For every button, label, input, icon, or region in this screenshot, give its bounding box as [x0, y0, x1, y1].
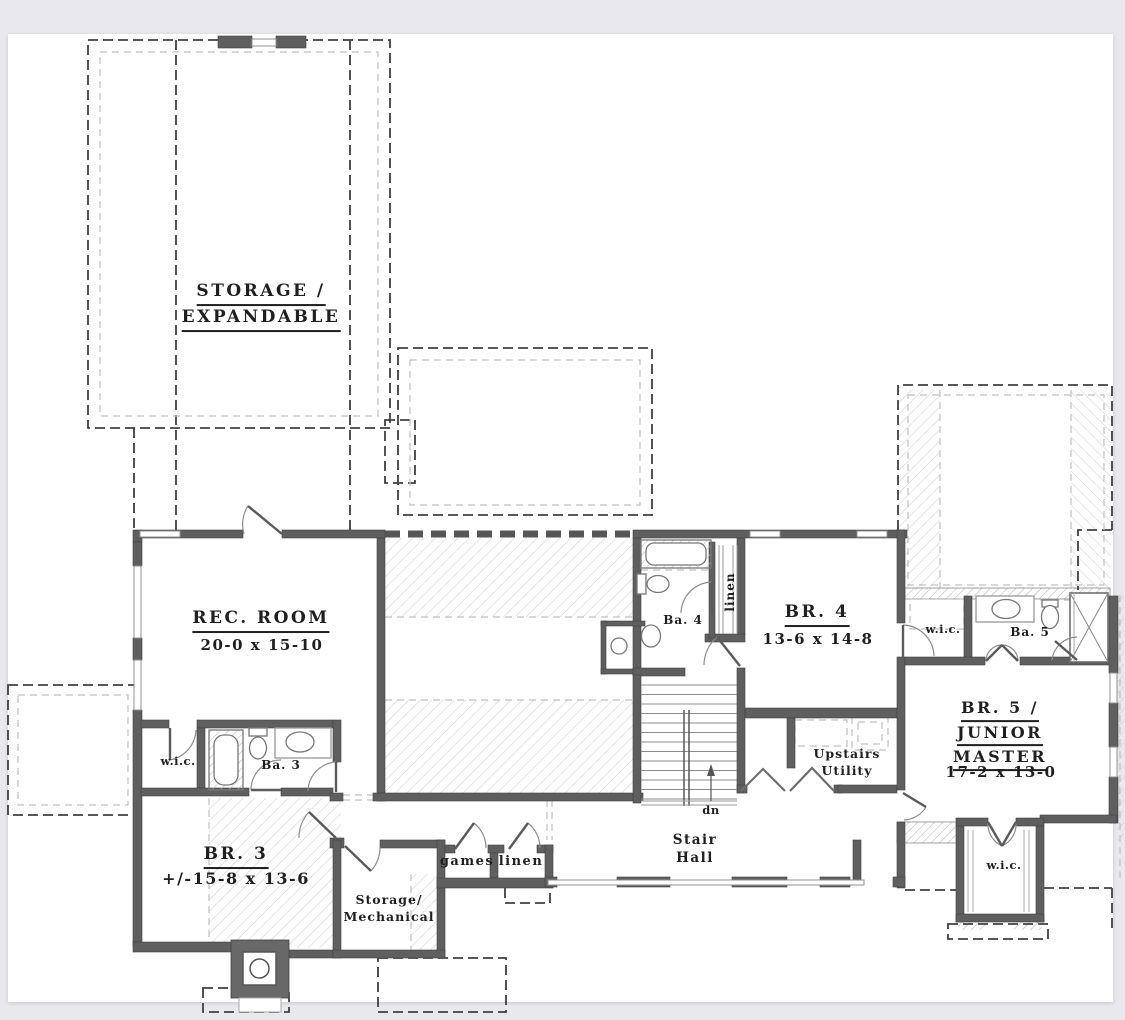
br4-window-2: [857, 531, 887, 537]
storage-mech-door-leaf: [345, 846, 371, 871]
games-door-arc: [474, 823, 486, 848]
stair-hall-window-band: [548, 880, 864, 885]
attic-strip-right: [1071, 390, 1111, 590]
roof-seg-5: [505, 888, 550, 903]
roof-outlines-dark: [8, 40, 1112, 1012]
toilet-3-tank: [249, 728, 267, 736]
wic-shelf-dash: [910, 599, 964, 629]
br5-hall-door-leaf: [903, 793, 926, 807]
ba4-door-arc: [681, 582, 712, 613]
toilet-4-tank: [637, 574, 646, 594]
rec-room-door-arc: [243, 506, 248, 534]
storage-roof-inner: [100, 52, 378, 416]
bedroom3-ceiling-hatch: [209, 798, 341, 948]
chimney-flue: [250, 959, 269, 978]
utility-appliance-inner: [858, 722, 882, 744]
ba3-hall-door-arc: [308, 762, 336, 791]
br5-hall-door-arc: [904, 807, 926, 820]
chimney-base: [239, 998, 281, 1012]
sink-4: [642, 625, 661, 647]
sink-5: [992, 600, 1020, 619]
games-door-leaf: [455, 823, 474, 849]
toilet-3-bowl: [250, 737, 267, 759]
rec-room-left-window-2: [134, 660, 141, 710]
storage-mech-door-arc: [371, 847, 380, 871]
center-roof-outline: [398, 348, 652, 515]
dormer-window: [252, 39, 276, 46]
niche-fixture: [611, 638, 627, 654]
toilet-4-bowl: [647, 576, 669, 593]
bifold-doors: [741, 768, 834, 791]
storage-roof-outline: [88, 40, 390, 428]
hatched-wall-band-bottom: [897, 822, 958, 843]
rec-room-top-window: [140, 531, 180, 537]
br5-window-2: [1110, 747, 1117, 777]
br4-window-1: [750, 531, 780, 537]
dormer-wall-right: [276, 36, 306, 48]
ba3-door-arc: [251, 760, 281, 790]
staircase: [641, 680, 737, 806]
open-ceiling-hatch-upper: [385, 538, 637, 617]
wic-master-door-arc: [903, 625, 934, 656]
storage-mech-hatch: [411, 874, 437, 950]
floor-plan-page: { "colors": { "background": "#e9e9ed", "…: [0, 0, 1125, 1020]
bifold-door-utility: [790, 768, 834, 791]
bathtub-4: [646, 543, 706, 565]
wic3-door-arc: [170, 730, 196, 760]
rec-room-door-leaf: [248, 506, 282, 534]
left-roof-outline: [8, 685, 138, 815]
linen-door-arc: [528, 823, 540, 848]
dormer-wall-left: [218, 36, 252, 48]
utility-shelf-dash-1: [795, 720, 847, 746]
roof-outlines-light: [18, 52, 1120, 950]
center-roof-inner: [410, 360, 640, 505]
left-roof-inner: [18, 695, 128, 805]
floor-plan-drawing: [0, 0, 1125, 1020]
lower-roof-outline: [378, 958, 506, 1012]
sink-3: [286, 732, 314, 752]
utility-appliance-dash: [852, 716, 888, 750]
open-ceiling-hatch-lower: [385, 700, 637, 793]
br5-window-1: [1110, 673, 1117, 703]
chimney: [231, 940, 289, 1012]
rec-room-left-window-1: [134, 566, 141, 638]
toilet-5-bowl: [1042, 606, 1059, 629]
bifold-door-vestibule: [741, 769, 785, 791]
linen-door-leaf: [509, 823, 528, 849]
bathtub-3: [214, 735, 238, 785]
